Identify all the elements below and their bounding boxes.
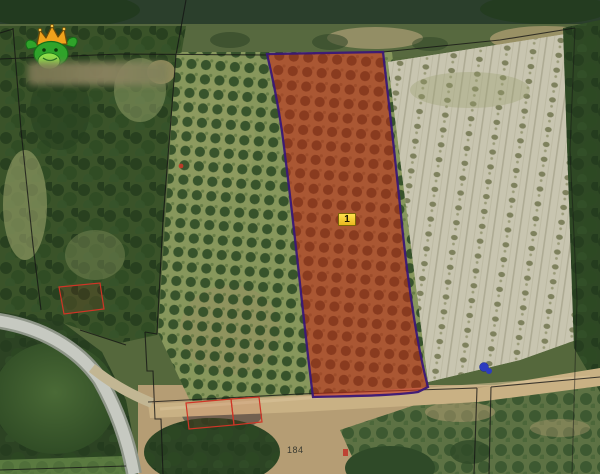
blurred-watermark [28, 62, 168, 85]
parcel-number-label: 184 [287, 445, 304, 455]
red-annotation-glyph [343, 449, 348, 456]
parcel-marker-1[interactable]: 1 [338, 213, 356, 226]
map-canvas[interactable]: 1 184 [0, 0, 600, 474]
